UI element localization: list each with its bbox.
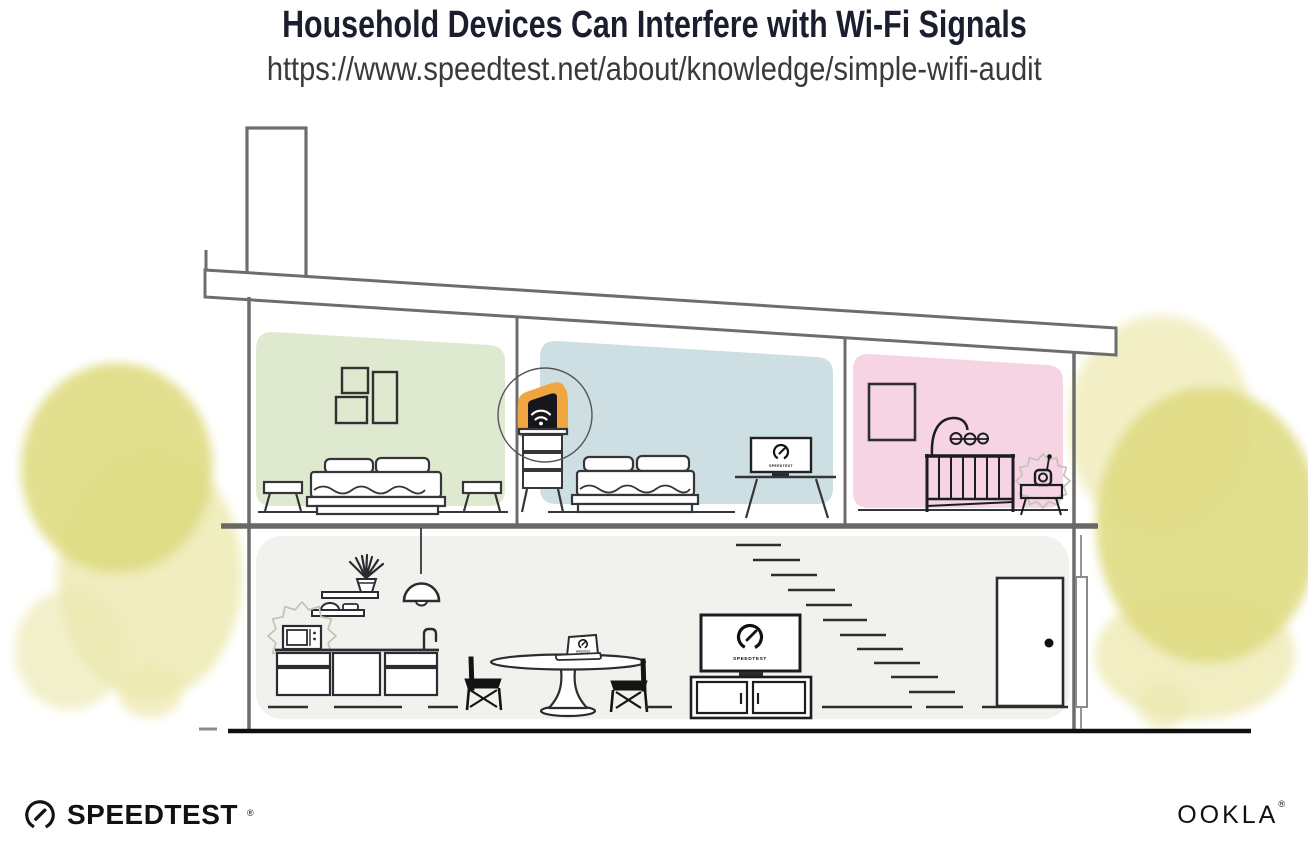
downspout [1076, 535, 1087, 729]
tv-console [691, 677, 811, 718]
doorknob [1045, 639, 1054, 648]
speedtest-registered-mark: ® [247, 808, 254, 818]
tv-screen-label: SPEEDTEST [733, 656, 767, 662]
bush-left [15, 363, 242, 718]
ookla-wordmark: OOKLA [1177, 801, 1278, 829]
speedtest-logo: SPEEDTEST® [22, 797, 254, 833]
chimney [247, 128, 306, 288]
house-illustration: SPEEDTEST [0, 0, 1308, 861]
ookla-logo: OOKLA® [1177, 801, 1288, 830]
kitchen-cabinets [275, 650, 439, 695]
speedtest-gauge-icon [22, 797, 58, 833]
bush-right [1068, 315, 1308, 728]
laptop-screen-label: SPEEDTEST [576, 651, 591, 654]
router-shelf [519, 429, 567, 512]
monitor-screen-label: SPEEDTEST [769, 464, 793, 468]
front-door [997, 578, 1063, 706]
bed [307, 458, 445, 514]
infographic-page: Household Devices Can Interfere with Wi-… [0, 0, 1308, 861]
microwave [283, 626, 321, 649]
ookla-registered-mark: ® [1278, 799, 1288, 809]
speedtest-wordmark: SPEEDTEST [67, 799, 238, 831]
tv: SPEEDTEST [701, 615, 800, 676]
